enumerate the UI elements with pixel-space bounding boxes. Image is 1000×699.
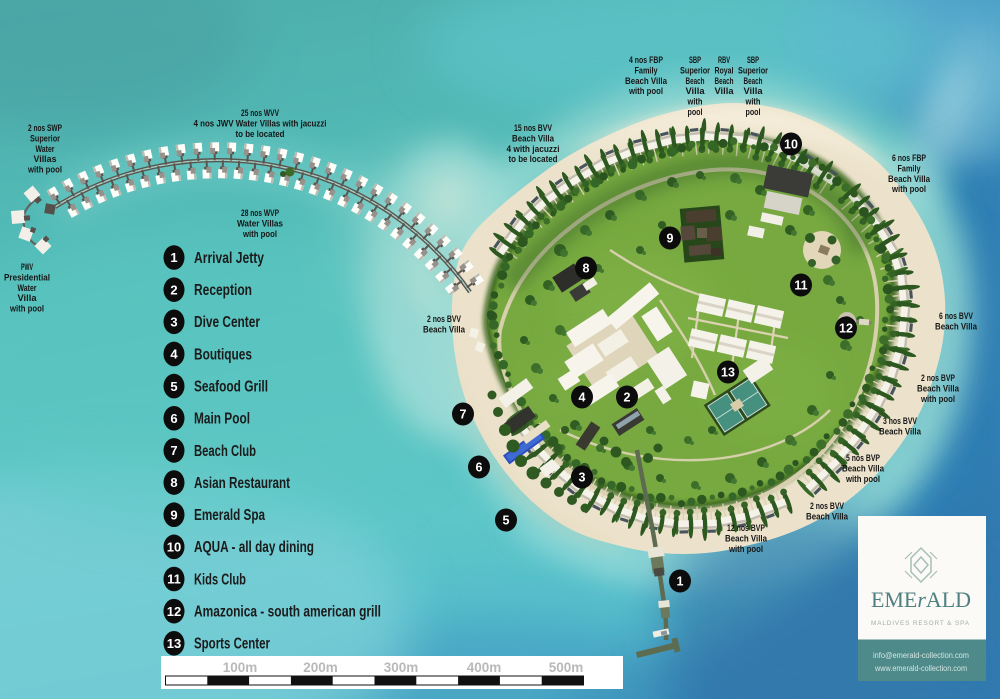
svg-text:500m: 500m <box>549 660 584 675</box>
svg-text:Beach Club: Beach Club <box>194 443 256 460</box>
svg-text:with pool: with pool <box>242 229 277 239</box>
svg-text:with pool: with pool <box>728 544 763 554</box>
svg-text:2: 2 <box>170 282 177 297</box>
svg-text:Villa: Villa <box>715 86 734 96</box>
svg-text:3: 3 <box>579 471 586 485</box>
svg-text:4: 4 <box>170 347 178 362</box>
svg-text:AQUA - all day dining: AQUA - all day dining <box>194 539 314 556</box>
svg-text:Beach Villa: Beach Villa <box>423 324 465 334</box>
svg-text:with pool: with pool <box>920 394 955 404</box>
svg-text:Water Villas: Water Villas <box>237 218 283 228</box>
svg-text:pool: pool <box>688 107 703 117</box>
svg-text:SBP: SBP <box>689 55 701 65</box>
svg-text:Family: Family <box>635 65 658 75</box>
svg-text:MALDIVES RESORT & SPA: MALDIVES RESORT & SPA <box>871 620 971 627</box>
svg-text:6: 6 <box>170 411 177 426</box>
svg-text:Royal: Royal <box>715 65 734 75</box>
svg-text:10: 10 <box>784 138 798 152</box>
svg-text:28 nos WVP: 28 nos WVP <box>241 208 279 218</box>
svg-text:9: 9 <box>170 507 177 522</box>
svg-text:to be located: to be located <box>236 129 285 139</box>
svg-text:www.emerald-collection.com: www.emerald-collection.com <box>874 664 967 673</box>
svg-text:Water: Water <box>36 144 55 154</box>
svg-text:3: 3 <box>170 315 177 330</box>
svg-text:info@emerald-collection.com: info@emerald-collection.com <box>873 651 969 660</box>
svg-text:Beach Villa: Beach Villa <box>806 511 848 521</box>
svg-text:6 nos BVV: 6 nos BVV <box>939 311 973 321</box>
svg-text:15 nos BVV: 15 nos BVV <box>514 123 552 133</box>
svg-text:Main Pool: Main Pool <box>194 411 250 428</box>
svg-text:2 nos BVV: 2 nos BVV <box>810 501 844 511</box>
svg-text:Villa: Villa <box>18 293 37 303</box>
svg-text:with pool: with pool <box>27 165 62 175</box>
svg-text:Dive Center: Dive Center <box>194 314 260 331</box>
svg-text:3 nos BVV: 3 nos BVV <box>883 416 917 426</box>
svg-text:12: 12 <box>839 322 853 336</box>
svg-text:RBV: RBV <box>718 55 730 65</box>
svg-text:Villa: Villa <box>744 86 763 96</box>
svg-text:Asian Restaurant: Asian Restaurant <box>194 475 290 492</box>
svg-text:Beach Villa: Beach Villa <box>725 533 767 543</box>
svg-text:1: 1 <box>677 575 684 589</box>
svg-text:11: 11 <box>794 279 807 293</box>
svg-text:with pool: with pool <box>845 474 880 484</box>
svg-text:300m: 300m <box>384 660 419 675</box>
svg-text:13: 13 <box>167 636 181 651</box>
svg-text:with pool: with pool <box>891 184 926 194</box>
svg-text:5 nos BVP: 5 nos BVP <box>846 453 880 463</box>
svg-text:Beach Villa: Beach Villa <box>625 76 667 86</box>
svg-text:EMErALD: EMErALD <box>871 587 971 612</box>
svg-text:Emerald Spa: Emerald Spa <box>194 507 265 524</box>
svg-text:2 nos BVV: 2 nos BVV <box>427 314 461 324</box>
svg-text:Water: Water <box>18 283 37 293</box>
svg-text:2 nos BVP: 2 nos BVP <box>921 373 955 383</box>
svg-text:Seafood Grill: Seafood Grill <box>194 379 268 396</box>
svg-text:Beach: Beach <box>744 76 763 86</box>
svg-text:5: 5 <box>503 514 510 528</box>
svg-text:Amazonica - south american gri: Amazonica - south american grill <box>194 604 381 621</box>
svg-text:4 with jacuzzi: 4 with jacuzzi <box>507 144 560 154</box>
svg-text:2: 2 <box>624 391 631 405</box>
svg-text:PWV: PWV <box>21 262 33 272</box>
svg-text:Beach Villa: Beach Villa <box>879 426 921 436</box>
svg-text:Kids Club: Kids Club <box>194 571 246 588</box>
svg-text:Superior: Superior <box>680 65 710 75</box>
svg-text:Villa: Villa <box>686 86 705 96</box>
svg-text:Beach: Beach <box>686 76 705 86</box>
svg-text:11: 11 <box>167 572 181 587</box>
svg-text:with pool: with pool <box>9 304 44 314</box>
svg-text:9: 9 <box>667 232 674 246</box>
svg-text:to be located: to be located <box>509 154 558 164</box>
svg-text:Superior: Superior <box>738 65 768 75</box>
svg-text:Arrival Jetty: Arrival Jetty <box>194 250 264 267</box>
svg-text:4 nos JWV Water Villas with ja: 4 nos JWV Water Villas with jacuzzi <box>194 118 327 128</box>
svg-text:Beach Villa: Beach Villa <box>512 133 554 143</box>
svg-text:Reception: Reception <box>194 282 252 299</box>
svg-text:12: 12 <box>167 604 181 619</box>
svg-text:8: 8 <box>583 262 590 276</box>
svg-text:100m: 100m <box>223 660 258 675</box>
svg-text:Beach Villa: Beach Villa <box>888 174 930 184</box>
svg-text:12 nos BVP: 12 nos BVP <box>727 523 765 533</box>
svg-text:4 nos FBP: 4 nos FBP <box>629 55 663 65</box>
svg-text:Boutiques: Boutiques <box>194 346 252 363</box>
svg-text:Presidential: Presidential <box>4 272 50 282</box>
svg-text:Superior: Superior <box>30 133 60 143</box>
svg-text:6 nos FBP: 6 nos FBP <box>892 153 926 163</box>
svg-text:pool: pool <box>746 107 761 117</box>
svg-text:7: 7 <box>170 443 177 458</box>
svg-text:4: 4 <box>579 391 586 405</box>
svg-text:13: 13 <box>721 366 735 380</box>
svg-text:6: 6 <box>476 461 483 475</box>
svg-text:Beach Villa: Beach Villa <box>842 463 884 473</box>
svg-text:with: with <box>745 97 761 107</box>
svg-text:2 nos SWP: 2 nos SWP <box>28 123 62 133</box>
svg-text:with pool: with pool <box>628 86 663 96</box>
svg-text:5: 5 <box>170 379 177 394</box>
svg-text:1: 1 <box>170 250 177 265</box>
svg-text:SBP: SBP <box>747 55 759 65</box>
svg-text:with: with <box>687 97 703 107</box>
svg-text:200m: 200m <box>303 660 338 675</box>
svg-text:Villas: Villas <box>34 154 57 164</box>
svg-text:Beach: Beach <box>715 76 734 86</box>
svg-text:Sports Center: Sports Center <box>194 636 270 653</box>
svg-text:Beach Villa: Beach Villa <box>917 383 959 393</box>
svg-text:10: 10 <box>167 540 181 555</box>
svg-text:25 nos WVV: 25 nos WVV <box>241 108 279 118</box>
svg-text:Beach Villa: Beach Villa <box>935 321 977 331</box>
svg-text:400m: 400m <box>467 660 502 675</box>
svg-text:8: 8 <box>170 475 177 490</box>
svg-text:Family: Family <box>898 163 921 173</box>
svg-text:7: 7 <box>460 408 467 422</box>
